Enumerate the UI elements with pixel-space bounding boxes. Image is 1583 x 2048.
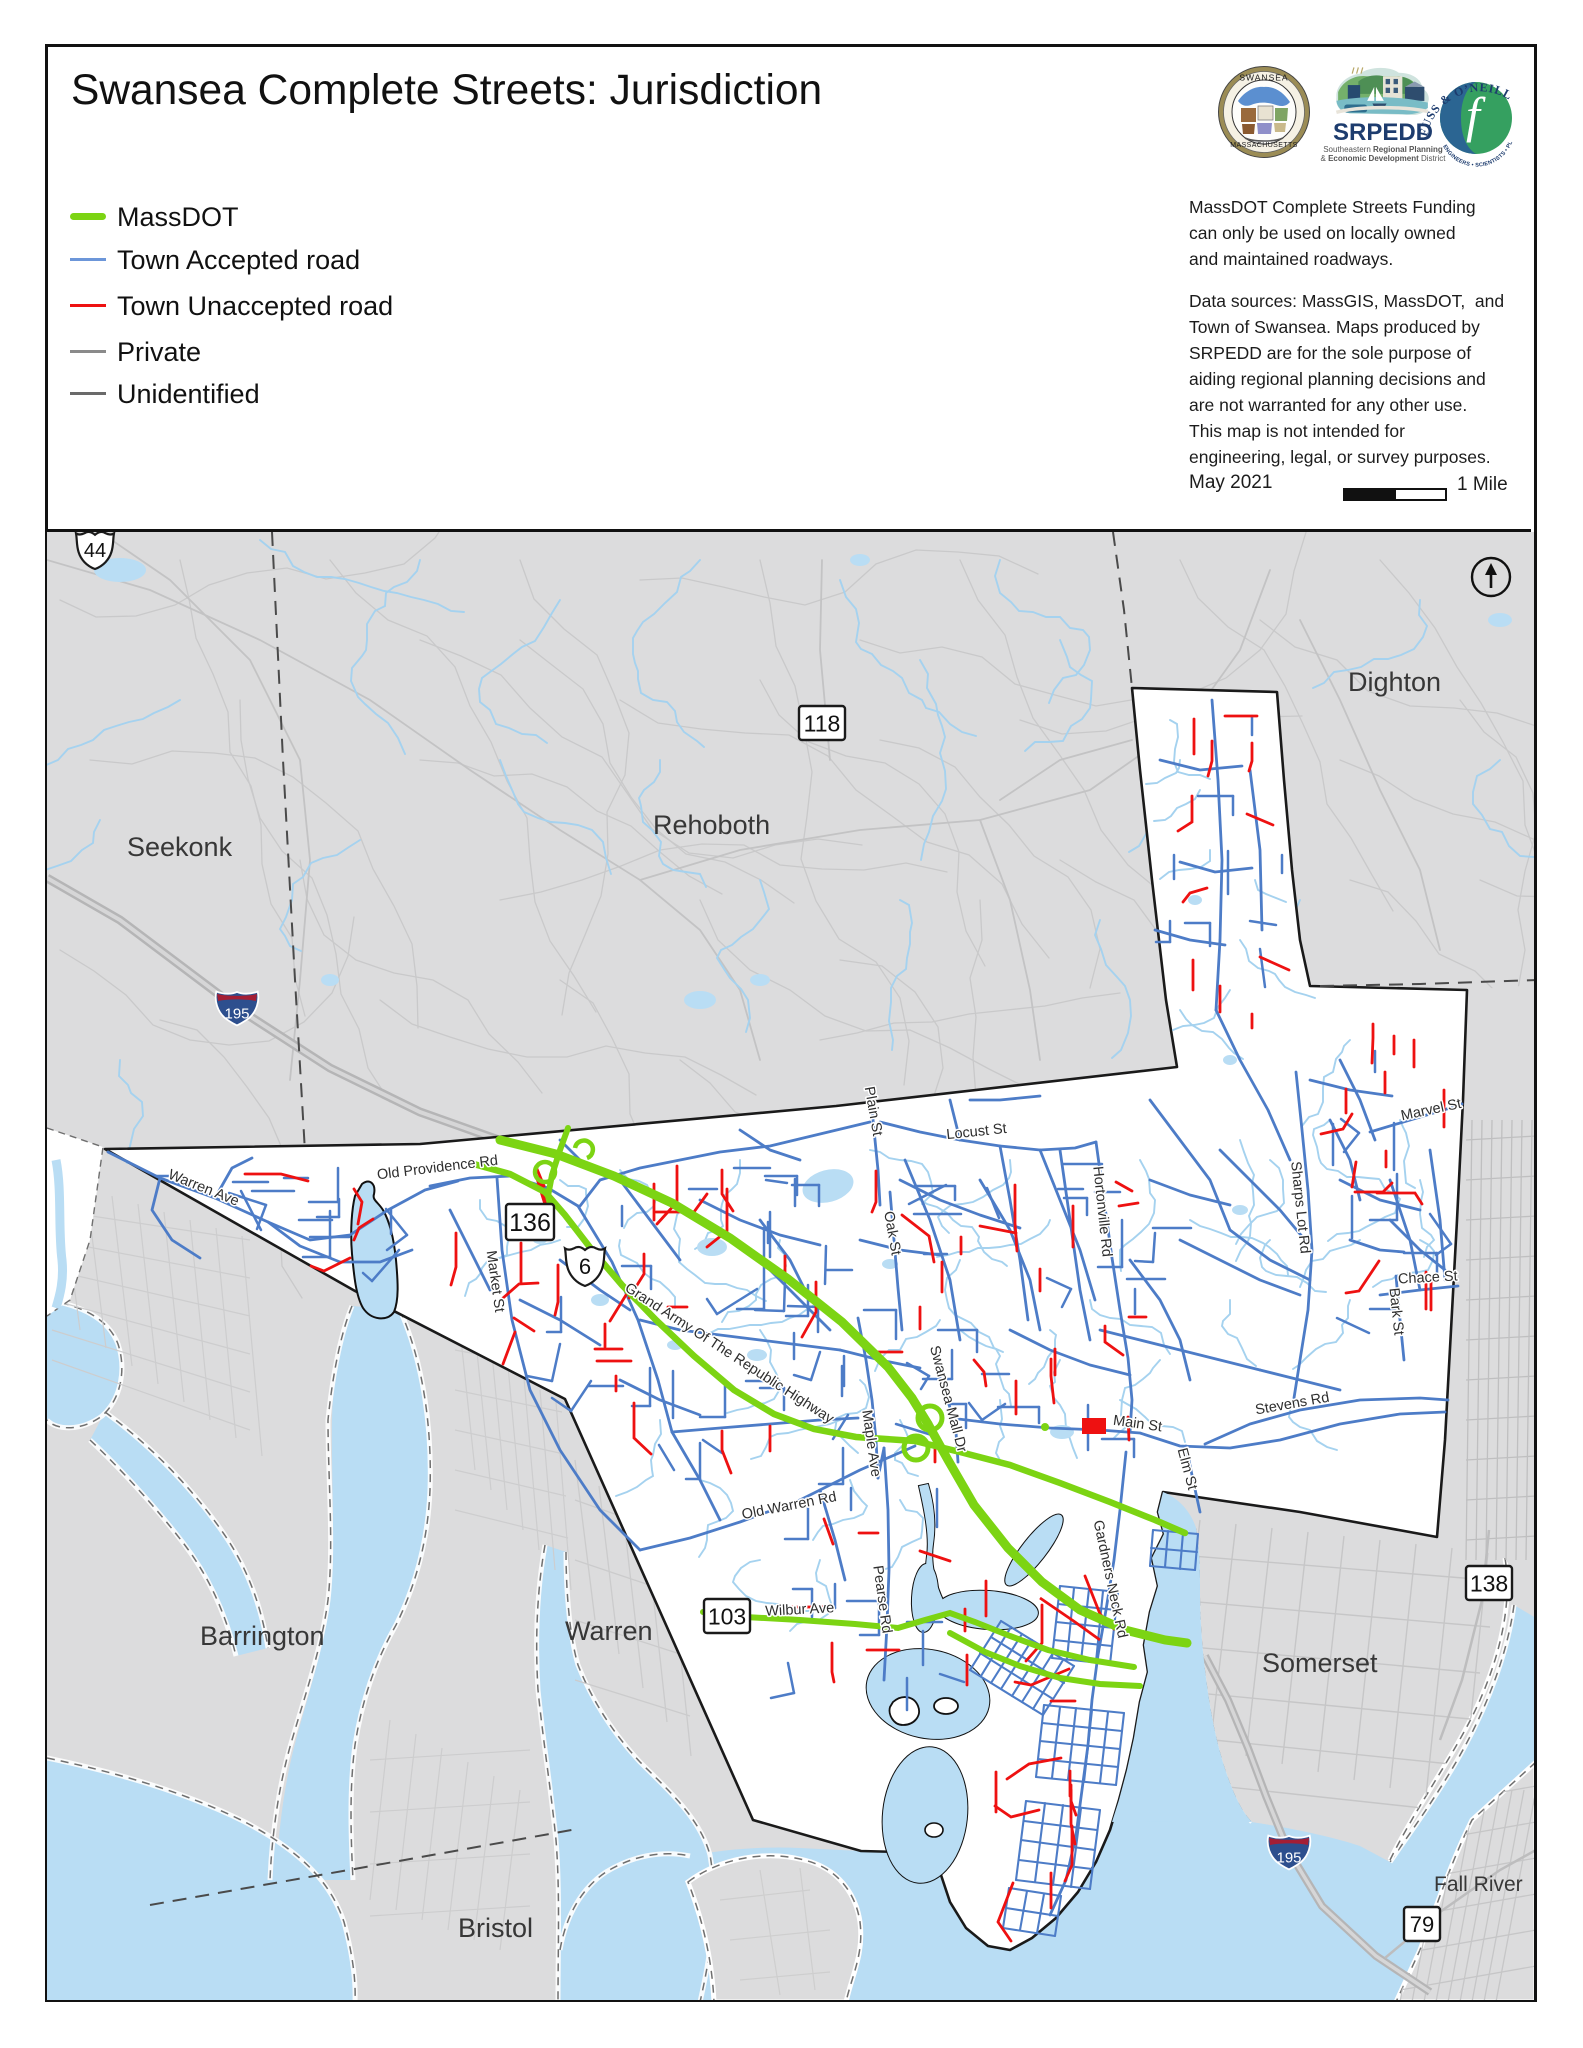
svg-text:138: 138 bbox=[1470, 1570, 1508, 1596]
svg-text:Dighton: Dighton bbox=[1348, 667, 1441, 697]
svg-text:79: 79 bbox=[1410, 1912, 1434, 1937]
svg-text:Barrington: Barrington bbox=[200, 1621, 325, 1651]
svg-text:Fall River: Fall River bbox=[1434, 1873, 1523, 1896]
svg-text:Rehoboth: Rehoboth bbox=[653, 810, 770, 840]
svg-text:Seekonk: Seekonk bbox=[127, 832, 233, 862]
svg-text:Chace St: Chace St bbox=[1398, 1268, 1458, 1287]
svg-text:Bristol: Bristol bbox=[458, 1913, 533, 1943]
svg-text:118: 118 bbox=[804, 710, 841, 736]
svg-text:Warren: Warren bbox=[565, 1616, 653, 1646]
svg-text:103: 103 bbox=[708, 1603, 746, 1629]
svg-text:136: 136 bbox=[509, 1209, 551, 1237]
svg-text:195: 195 bbox=[1276, 1850, 1301, 1867]
svg-text:6: 6 bbox=[579, 1254, 591, 1279]
svg-text:44: 44 bbox=[84, 540, 106, 562]
svg-text:195: 195 bbox=[224, 1006, 249, 1023]
svg-text:Somerset: Somerset bbox=[1262, 1648, 1378, 1678]
